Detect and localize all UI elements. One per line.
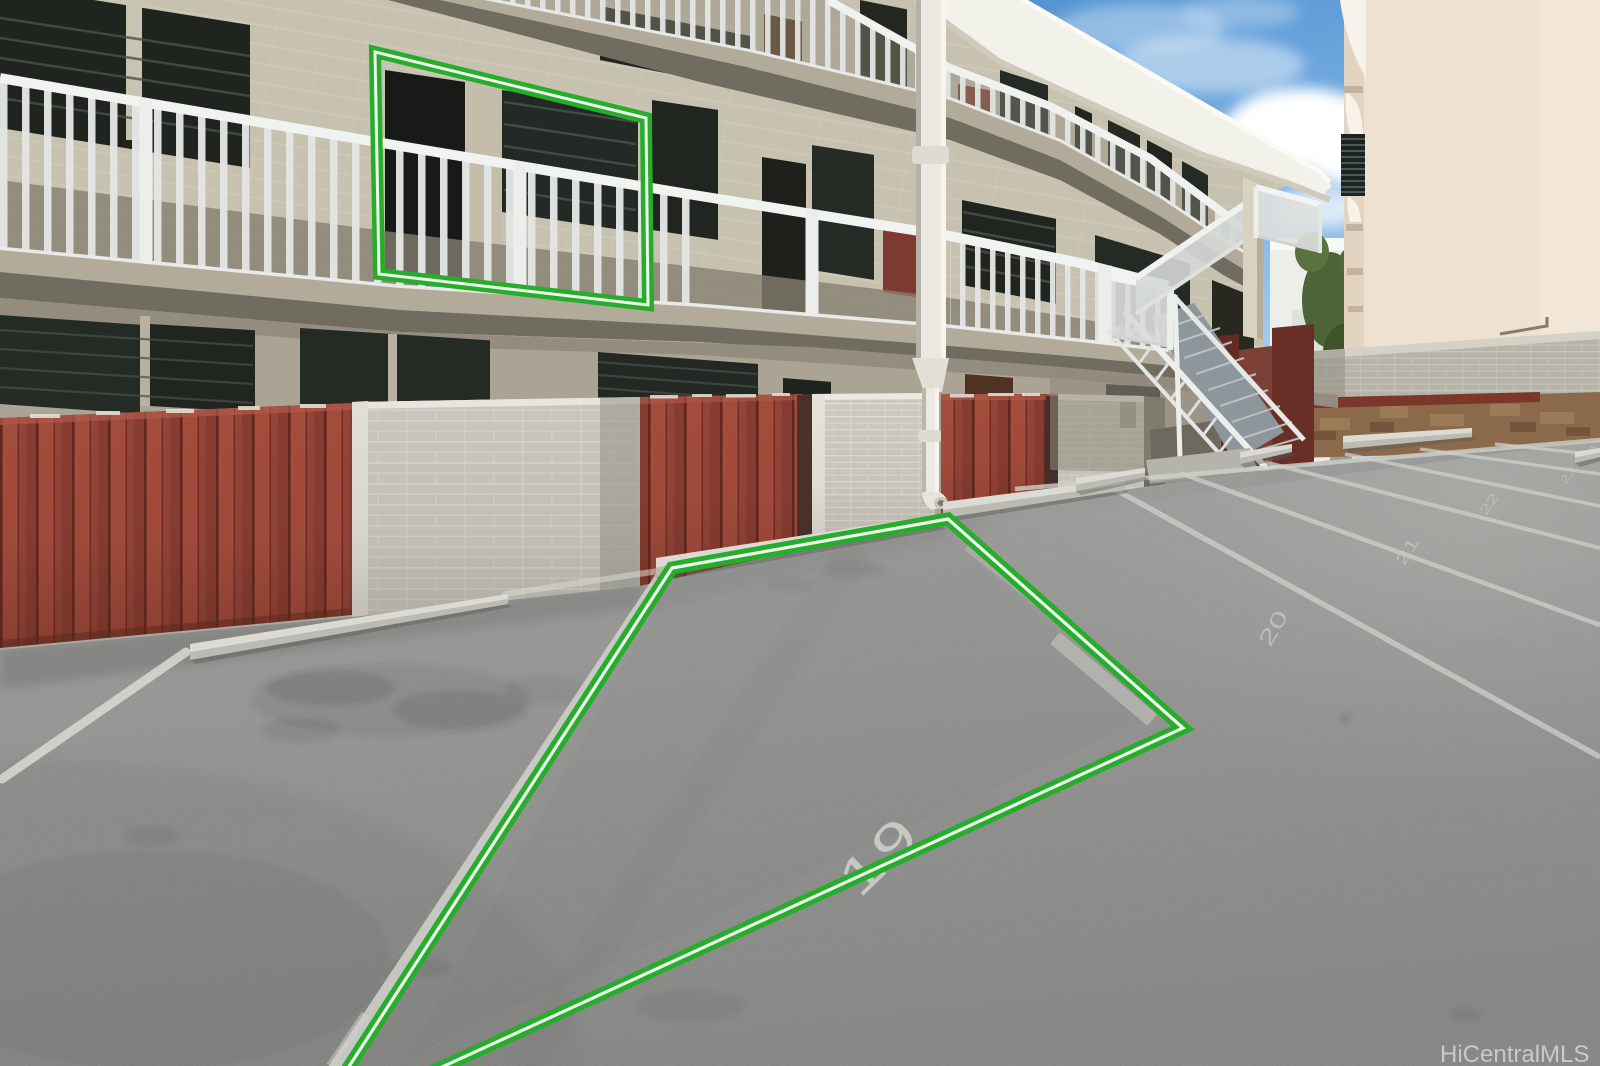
svg-text:HiCentralMLS: HiCentralMLS [1440,1041,1589,1066]
